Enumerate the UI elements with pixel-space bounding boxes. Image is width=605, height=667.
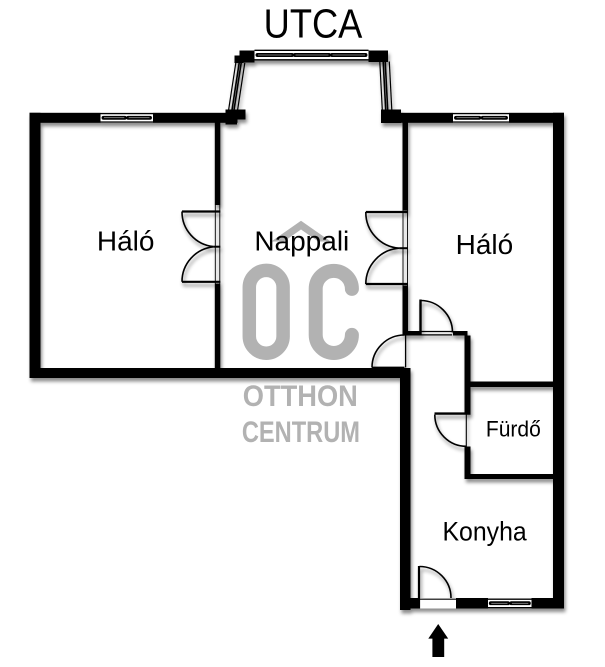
svg-text:Konyha: Konyha (442, 518, 527, 547)
svg-text:Fürdő: Fürdő (486, 416, 541, 442)
svg-text:OTTHON: OTTHON (243, 380, 358, 413)
svg-text:Nappali: Nappali (254, 226, 349, 257)
svg-text:UTCA: UTCA (264, 1, 363, 47)
svg-text:CENTRUM: CENTRUM (242, 415, 360, 448)
svg-text:Háló: Háló (456, 229, 514, 260)
svg-text:Háló: Háló (97, 226, 155, 257)
